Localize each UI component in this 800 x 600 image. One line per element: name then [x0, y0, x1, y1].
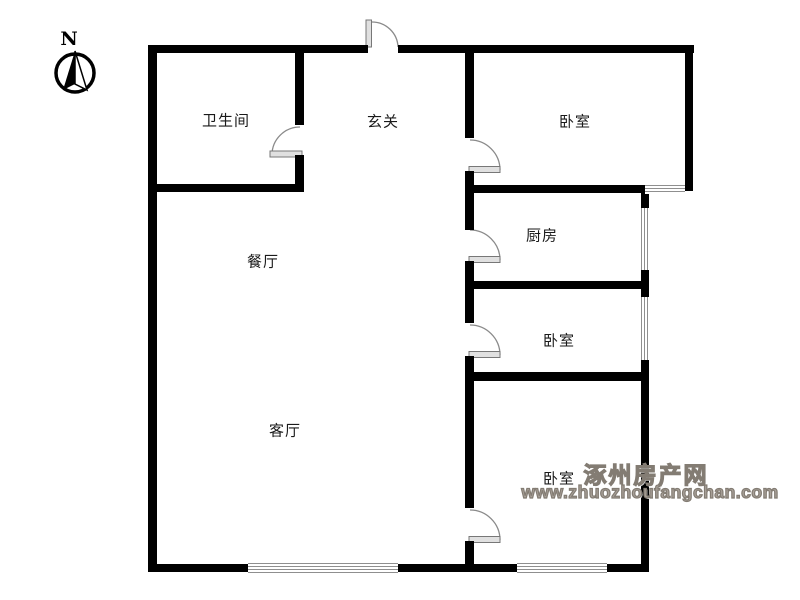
room-label-bedroom-middle: 卧室: [543, 330, 575, 351]
window-kitchen: [641, 208, 649, 270]
compass-icon: N: [56, 28, 94, 92]
kitchen-door-icon: [469, 230, 500, 263]
wall-bathroom-bottom: [148, 184, 304, 192]
watermark-site-url: www.zhuozhoufangchan.com: [521, 482, 778, 503]
bedroom-top-door-icon: [469, 140, 500, 173]
window-bedroom-middle: [641, 297, 649, 360]
room-label-dining-room: 餐厅: [247, 251, 279, 272]
wall-top-right: [398, 45, 694, 53]
wall-bathroom-right-upper: [295, 45, 304, 125]
plan-graphics: N: [0, 0, 800, 600]
room-label-living-room: 客厅: [269, 420, 301, 441]
room-label-kitchen: 厨房: [526, 225, 558, 246]
room-label-bedroom-top: 卧室: [559, 111, 591, 132]
wall-bedroom-top-bottom: [465, 185, 645, 193]
wall-divider-1: [465, 45, 474, 138]
bedroom-bottom-door-icon: [469, 510, 500, 543]
wall-right-kitchen-lower: [641, 270, 649, 297]
window-bedroom-top: [645, 185, 685, 194]
wall-divider-2: [465, 171, 474, 230]
wall-divider-5: [465, 541, 474, 572]
wall-left: [148, 45, 157, 572]
wall-kitchen-bottom: [465, 281, 649, 289]
bedroom-middle-door-icon: [469, 325, 500, 358]
wall-divider-3: [465, 261, 474, 323]
north-label: N: [60, 28, 77, 50]
window-bedroom-bottom: [517, 563, 607, 574]
room-label-hallway: 玄关: [367, 111, 399, 132]
bathroom-door-icon: [270, 127, 302, 157]
window-living-room: [248, 563, 398, 574]
wall-top-left: [148, 45, 368, 53]
floor-plan: N: [0, 0, 800, 600]
entrance-door-icon: [366, 20, 398, 47]
wall-right-upper: [685, 45, 693, 191]
wall-bedroom-middle-bottom: [465, 372, 649, 381]
room-label-bathroom: 卫生间: [202, 110, 250, 131]
